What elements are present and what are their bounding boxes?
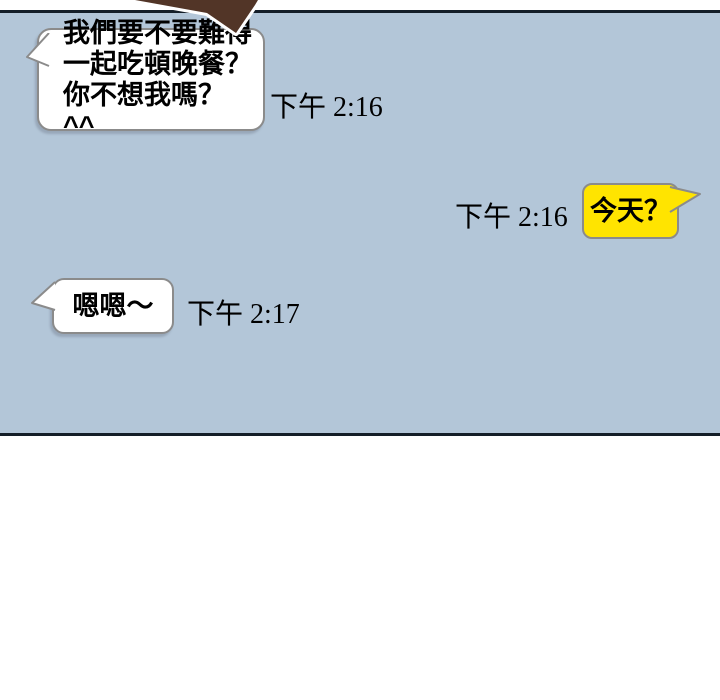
- chat-bubble-right-1: 今天？: [582, 183, 679, 239]
- chat-bubble-left-1: 我們要不要難得 一起吃頓晚餐？ 你不想我嗎？ ^^: [37, 28, 265, 131]
- chat-bubble-left-2-tail-icon: [29, 280, 56, 312]
- timestamp-3: 下午 2:17: [187, 300, 300, 330]
- chat-bubble-right-1-text: 今天？: [590, 196, 671, 227]
- timestamp-2: 下午 2:16: [455, 203, 568, 233]
- brown-speech-bubble-tail-icon: [125, 0, 273, 42]
- chat-bubble-right-1-tail-icon: [668, 182, 704, 216]
- timestamp-1: 下午 2:16: [270, 93, 383, 123]
- panel-bottom-border: [0, 433, 720, 436]
- chat-bubble-left-1-tail-icon: [24, 33, 50, 69]
- panel-top-border: [0, 10, 720, 13]
- chat-bubble-left-2-text: 嗯嗯～: [73, 291, 154, 322]
- webtoon-chat-page: { "panel": { "background_color": "#b3c6d…: [0, 0, 720, 700]
- chat-bubble-left-2: 嗯嗯～: [52, 278, 174, 334]
